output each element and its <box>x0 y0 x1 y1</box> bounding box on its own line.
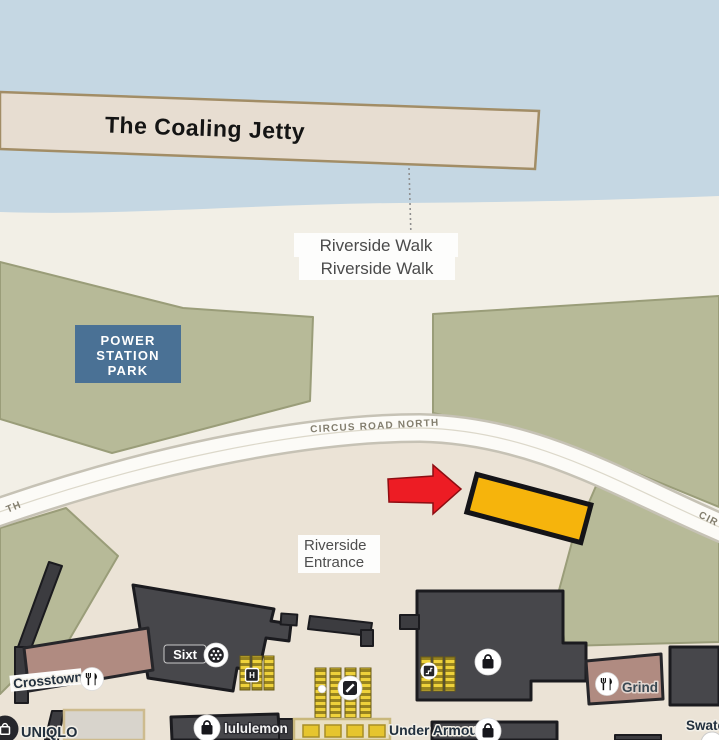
building-east-edge <box>670 647 719 705</box>
stairs-small-icon <box>421 663 438 680</box>
map-dot-marker <box>318 685 326 693</box>
wheel-icon <box>204 643 228 667</box>
lululemon-label: lululemon <box>224 721 288 736</box>
sixt-label-group: Sixt <box>164 645 206 663</box>
riverside-walk-label-1: Riverside Walk <box>320 236 433 255</box>
escalator-icon <box>338 676 362 700</box>
swatch-label: Swatc <box>686 718 719 733</box>
wall-segment <box>400 615 419 629</box>
wall-segment <box>281 613 298 625</box>
park-sign-line2: STATION <box>96 348 160 363</box>
wall-segment <box>615 735 661 740</box>
riverside-walk-label-2: Riverside Walk <box>321 259 434 278</box>
shopping-bag-icon <box>475 649 501 675</box>
park-sign-line3: PARK <box>108 363 149 378</box>
platform-kiosks <box>294 719 390 740</box>
riverside-entrance-line1: Riverside <box>304 537 367 554</box>
shopping-bag-icon <box>194 715 220 740</box>
lift-icon-glyph: H <box>249 671 255 680</box>
riverside-map: CIRCUS ROAD NORTH TH CIR The Coaling Jet… <box>0 0 719 740</box>
shopping-bag-icon <box>475 718 501 740</box>
fork-knife-icon <box>596 673 619 696</box>
sixt-label: Sixt <box>173 647 198 662</box>
lift-icon: H <box>246 669 259 682</box>
park-sign-line1: POWER <box>100 333 155 348</box>
grind-label: Grind <box>622 680 658 695</box>
riverside-entrance-line2: Entrance <box>304 554 364 571</box>
uniqlo-label: UNIQLO <box>21 725 77 740</box>
fork-knife-icon <box>81 668 104 691</box>
wall-segment <box>361 630 373 646</box>
under-armour-label: Under Armour <box>389 722 484 738</box>
